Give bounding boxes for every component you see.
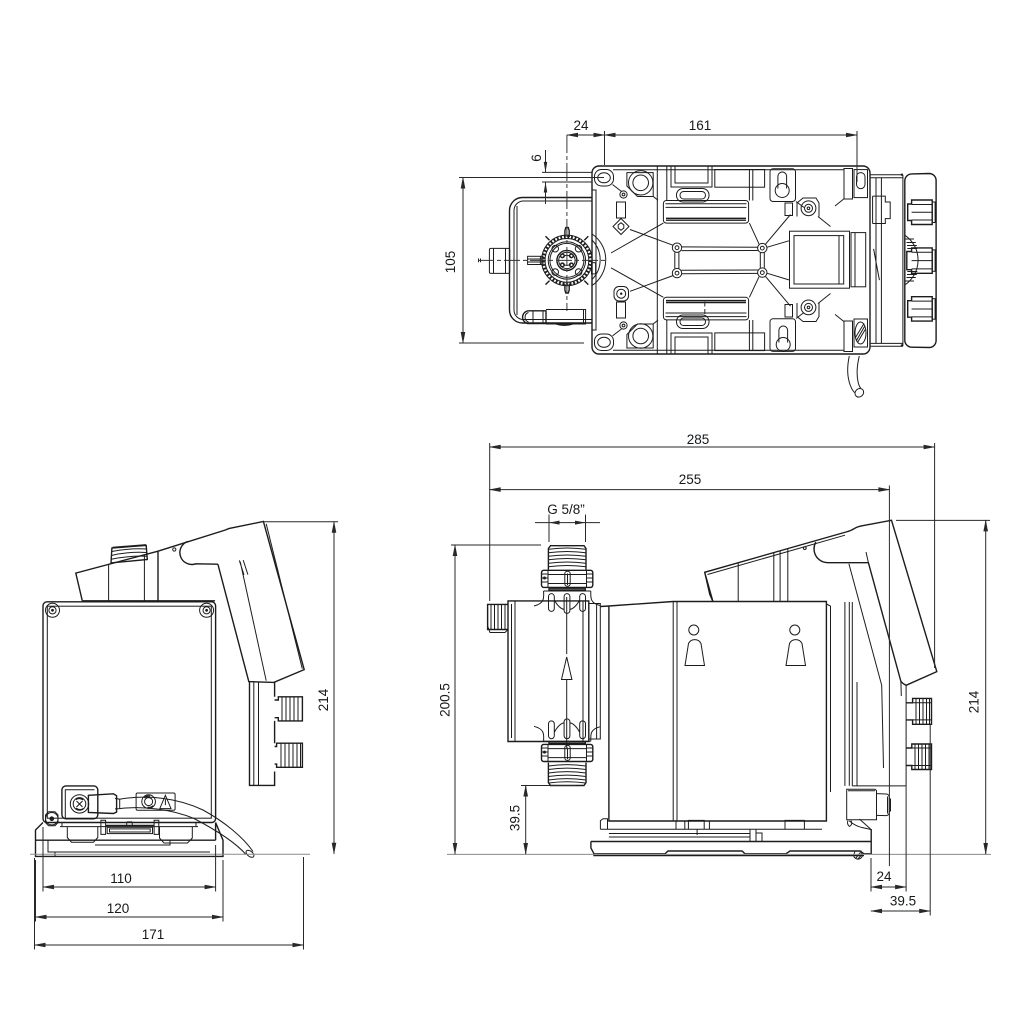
svg-text:105: 105 [443, 251, 458, 274]
svg-text:171: 171 [142, 927, 165, 942]
svg-text:285: 285 [687, 432, 710, 447]
svg-text:200.5: 200.5 [438, 683, 453, 717]
svg-text:214: 214 [316, 688, 331, 711]
svg-text:39.5: 39.5 [890, 894, 916, 909]
svg-text:214: 214 [967, 690, 982, 713]
svg-text:G 5/8”: G 5/8” [547, 502, 585, 517]
svg-text:110: 110 [110, 871, 132, 886]
svg-text:255: 255 [679, 472, 702, 487]
svg-text:24: 24 [876, 869, 892, 884]
svg-text:39.5: 39.5 [508, 805, 523, 831]
svg-text:120: 120 [107, 901, 130, 916]
svg-text:24: 24 [573, 118, 589, 133]
svg-text:6: 6 [529, 154, 544, 162]
svg-text:161: 161 [689, 118, 712, 133]
